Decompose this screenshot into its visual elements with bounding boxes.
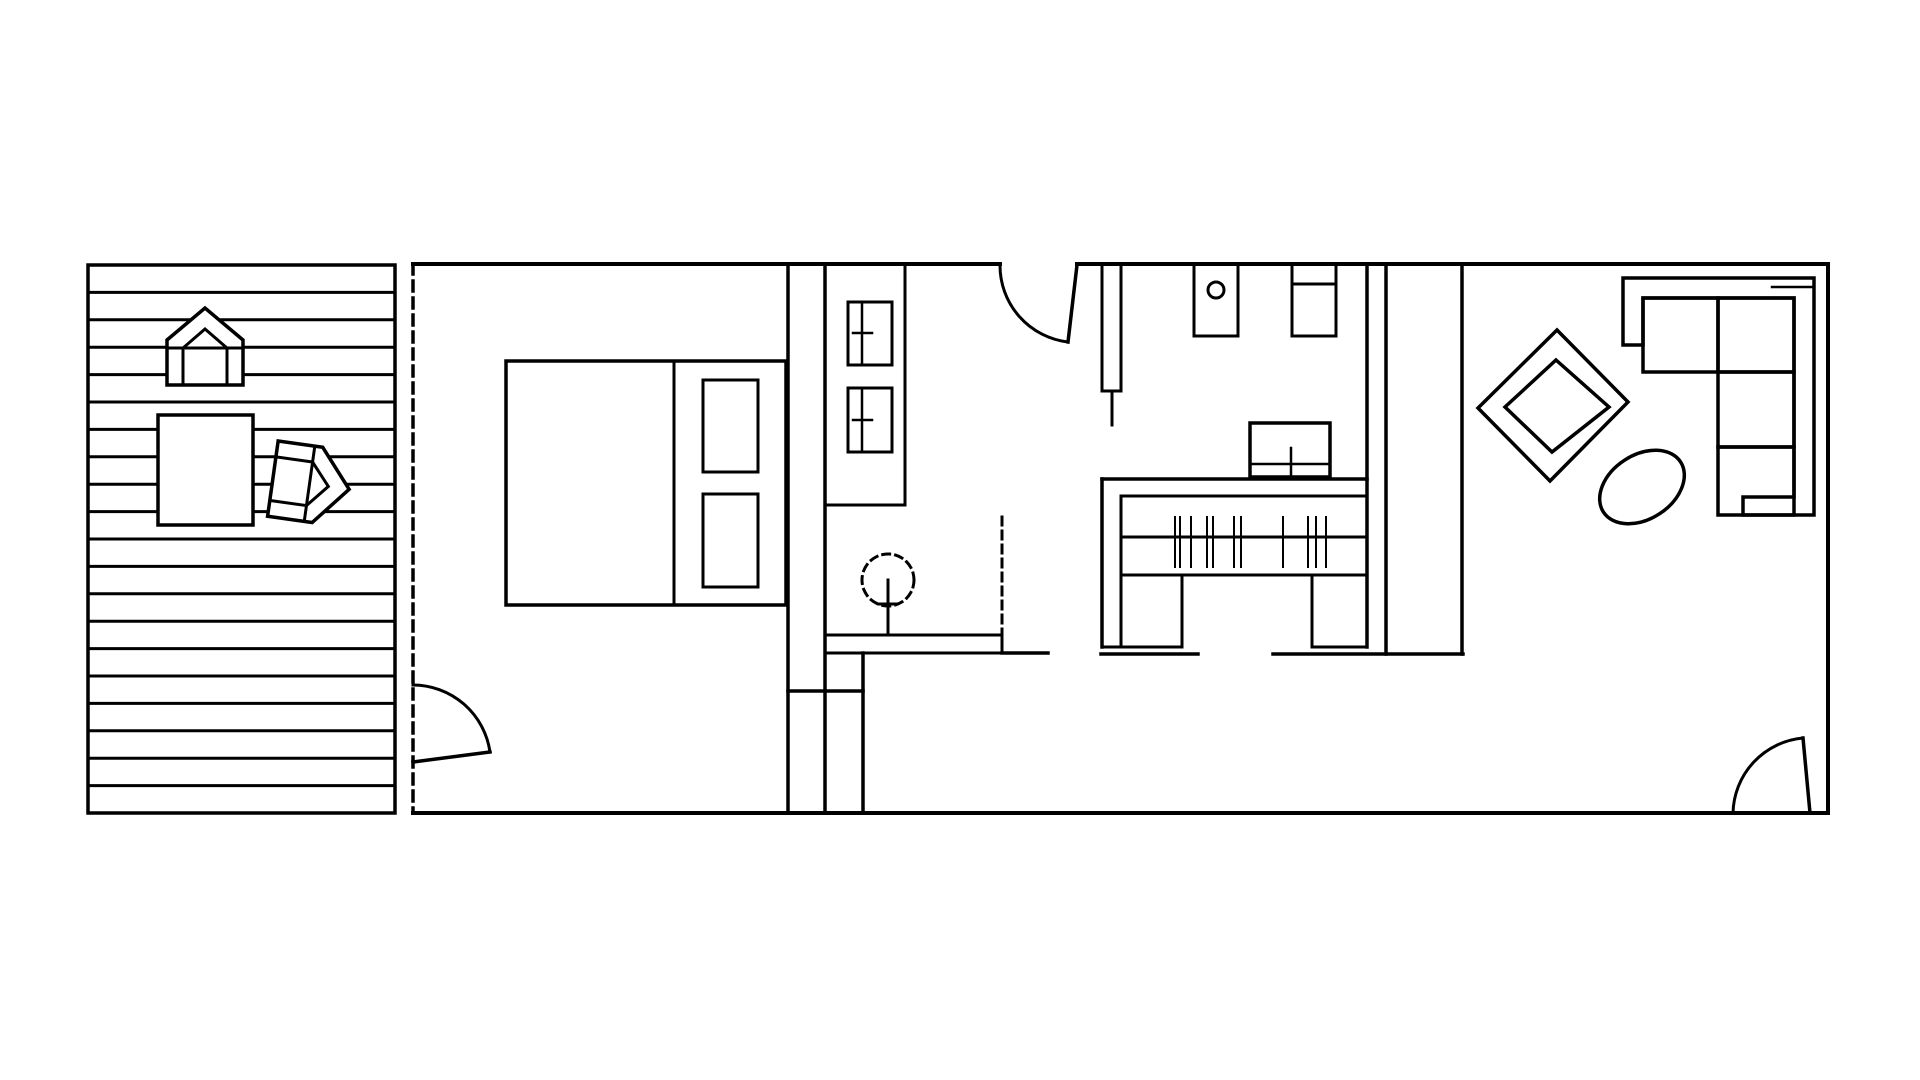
appliance-with-knob	[1194, 264, 1238, 336]
bath-cabinet	[825, 264, 905, 505]
tall-cabinet	[1102, 264, 1121, 391]
counter-slats	[1175, 517, 1326, 567]
deck-door-swing-arc	[413, 685, 490, 752]
bed-outline	[506, 361, 786, 605]
bath-door-swing-arc	[1000, 265, 1068, 342]
entry-door-leaf	[1803, 738, 1810, 813]
sofa-cushion-3	[1718, 372, 1794, 447]
bed-pillow-1	[703, 380, 758, 472]
sofa-cushion-2	[1718, 298, 1794, 372]
floor-plan-canvas	[0, 0, 1920, 1080]
wall-fixture	[1292, 264, 1336, 336]
sofa-cushion-1	[1643, 298, 1718, 372]
deck-door-leaf	[413, 752, 490, 762]
bed-pillow-2	[703, 494, 758, 587]
oval-coffee-table	[1586, 435, 1698, 539]
entry-door-swing-arc	[1733, 738, 1803, 813]
sofa-cushion-4	[1718, 447, 1794, 515]
deck-chair-side	[268, 441, 355, 527]
hall-console	[825, 635, 1002, 653]
bath-door-leaf	[1068, 265, 1077, 342]
appliance-knob	[1208, 282, 1224, 298]
floor-plan-page	[0, 0, 1920, 1080]
deck-table	[158, 415, 253, 525]
